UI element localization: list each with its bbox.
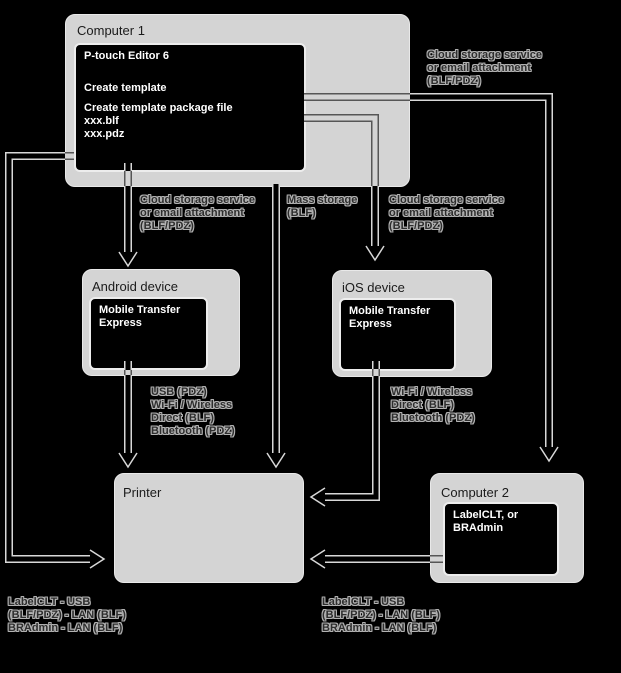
label-line: Wi-Fi / Wireless <box>151 399 235 412</box>
app-line: Create template package file <box>84 102 296 115</box>
label-line: (BLF/PDZ) <box>389 220 504 233</box>
arrow-ios-to-printer <box>311 361 376 506</box>
label-line: Cloud storage service <box>427 49 542 62</box>
node-ios-title: iOS device <box>342 280 405 295</box>
diagram-canvas: Computer 1 P-touch Editor 6 Create templ… <box>0 0 621 673</box>
node-computer1: Computer 1 P-touch Editor 6 Create templ… <box>65 14 410 187</box>
arrowhead-left <box>311 550 325 568</box>
label-cloud-storage-android: Cloud storage serviceor email attachment… <box>140 194 255 233</box>
label-line: LabelCLT, or <box>453 509 549 522</box>
label-line: Mobile Transfer <box>99 304 198 317</box>
node-android-device: Android device Mobile TransferExpress <box>82 269 240 376</box>
mobile-transfer-express-box-ios: Mobile TransferExpress <box>339 298 456 371</box>
label-wifi-bluetooth-ios: Wi-Fi / WirelessDirect (BLF)Bluetooth (P… <box>391 386 475 425</box>
label-line: or email attachment <box>427 62 542 75</box>
label-line: (BLF/PDZ) - LAN (BLF) <box>322 609 440 622</box>
label-line: Direct (BLF) <box>151 412 235 425</box>
node-computer2-title: Computer 2 <box>441 485 509 500</box>
app-name: P-touch Editor 6 <box>84 50 296 63</box>
arrowhead-down <box>540 447 558 461</box>
label-line: or email attachment <box>140 207 255 220</box>
label-line: BRAdmin - LAN (BLF) <box>322 622 440 635</box>
label-line: (BLF/PDZ) <box>140 220 255 233</box>
label-line: or email attachment <box>389 207 504 220</box>
label-line: Express <box>349 318 446 331</box>
label-labelclt-bottom-left: LabelCLT - USB(BLF/PDZ) - LAN (BLF)BRAdm… <box>8 596 126 635</box>
node-computer2: Computer 2 LabelCLT, orBRAdmin <box>430 473 584 583</box>
arrowhead-down <box>366 246 384 260</box>
app-line: xxx.pdz <box>84 128 296 141</box>
label-line: (BLF/PDZ) <box>427 75 542 88</box>
label-line: USB (PDZ) <box>151 386 235 399</box>
label-line: Mass storage <box>287 194 357 207</box>
label-usb-wifi-bluetooth-android: USB (PDZ)Wi-Fi / WirelessDirect (BLF)Blu… <box>151 386 235 438</box>
label-line: (BLF/PDZ) - LAN (BLF) <box>8 609 126 622</box>
label-line: (BLF) <box>287 207 357 220</box>
node-printer: Printer <box>114 473 304 583</box>
label-line: LabelCLT - USB <box>322 596 440 609</box>
arrow-computer2-to-printer <box>311 550 443 568</box>
label-line: LabelCLT - USB <box>8 596 126 609</box>
label-cloud-storage-top-right: Cloud storage serviceor email attachment… <box>427 49 542 88</box>
node-printer-title: Printer <box>123 485 161 500</box>
label-labelclt-bottom-center: LabelCLT - USB(BLF/PDZ) - LAN (BLF)BRAdm… <box>322 596 440 635</box>
label-line: Wi-Fi / Wireless <box>391 386 475 399</box>
node-android-title: Android device <box>92 279 178 294</box>
label-mass-storage: Mass storage(BLF) <box>287 194 357 220</box>
arrowhead-down <box>119 453 137 467</box>
label-line: BRAdmin - LAN (BLF) <box>8 622 126 635</box>
label-line: Bluetooth (PDZ) <box>391 412 475 425</box>
arrowhead-down <box>119 252 137 266</box>
label-line: Direct (BLF) <box>391 399 475 412</box>
arrowhead-left <box>311 488 325 506</box>
mobile-transfer-express-box-android: Mobile TransferExpress <box>89 297 208 370</box>
node-computer1-title: Computer 1 <box>77 23 145 38</box>
label-line: Cloud storage service <box>389 194 504 207</box>
labelclt-bradmin-box: LabelCLT, orBRAdmin <box>443 502 559 576</box>
app-line: Create template <box>84 82 296 95</box>
arrow-computer1-to-printer-mass-storage <box>267 184 285 467</box>
label-line: BRAdmin <box>453 522 549 535</box>
ptouch-editor-box: P-touch Editor 6 Create template Create … <box>74 43 306 172</box>
label-line: Mobile Transfer <box>349 305 446 318</box>
label-line: Cloud storage service <box>140 194 255 207</box>
app-line: xxx.blf <box>84 115 296 128</box>
label-line: Bluetooth (PDZ) <box>151 425 235 438</box>
arrowhead-down <box>267 453 285 467</box>
arrowhead-right <box>90 550 104 568</box>
label-line: Express <box>99 317 198 330</box>
node-ios-device: iOS device Mobile TransferExpress <box>332 270 492 377</box>
label-cloud-storage-ios: Cloud storage serviceor email attachment… <box>389 194 504 233</box>
arrow-android-to-printer <box>119 361 137 467</box>
